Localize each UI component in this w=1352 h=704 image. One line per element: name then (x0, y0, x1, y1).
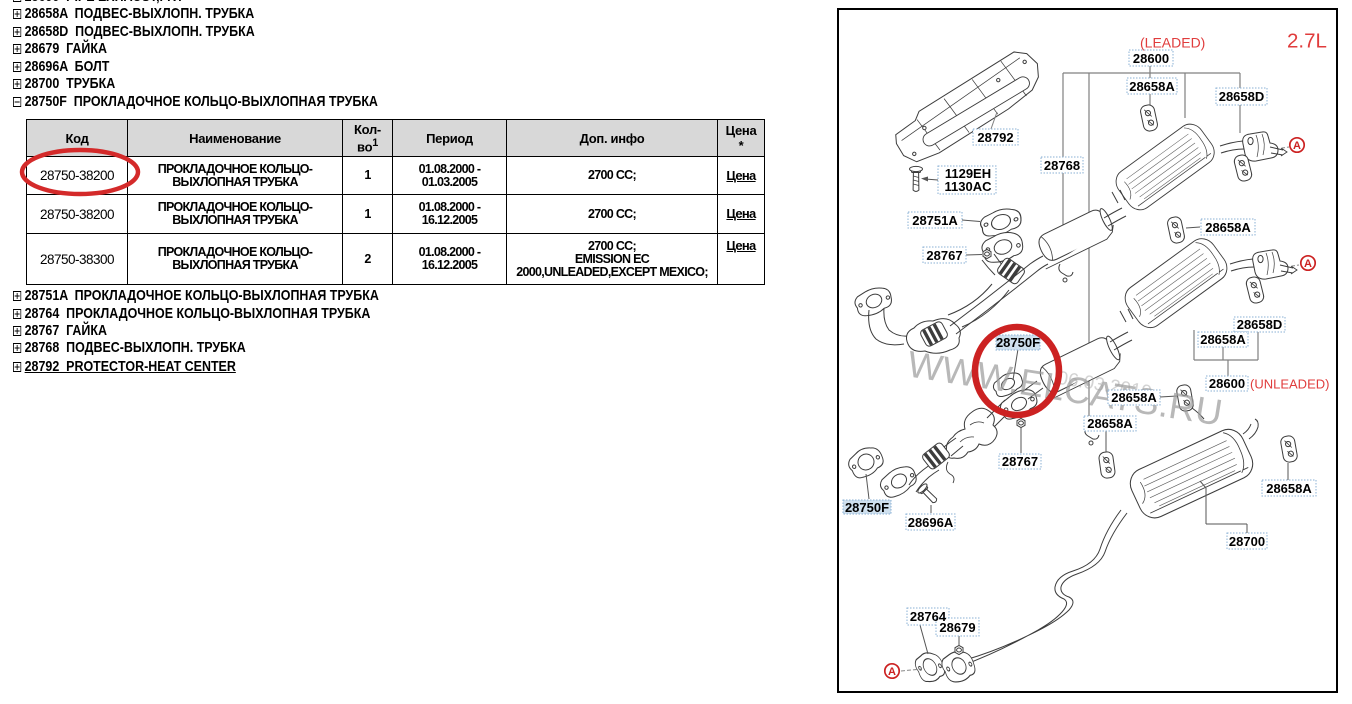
svg-text:28768: 28768 (1044, 158, 1080, 173)
svg-text:28792: 28792 (977, 130, 1013, 145)
svg-text:28658D: 28658D (1219, 89, 1265, 104)
svg-text:28750F: 28750F (845, 500, 889, 515)
svg-text:(UNLEADED): (UNLEADED) (1250, 377, 1329, 392)
svg-text:28658A: 28658A (1200, 332, 1246, 347)
svg-text:1130AC: 1130AC (945, 179, 993, 194)
svg-text:28658A: 28658A (1087, 416, 1133, 431)
svg-text:28658A: 28658A (1111, 390, 1157, 405)
svg-text:28679: 28679 (939, 620, 975, 635)
svg-text:28767: 28767 (1002, 454, 1038, 469)
svg-text:28658A: 28658A (1266, 481, 1312, 496)
svg-text:28700: 28700 (1229, 534, 1265, 549)
svg-text:28658A: 28658A (1129, 79, 1175, 94)
svg-text:28600: 28600 (1133, 51, 1169, 66)
svg-text:28600: 28600 (1209, 376, 1245, 391)
svg-text:2.7L: 2.7L (1287, 30, 1327, 53)
svg-text:28750F: 28750F (996, 335, 1040, 350)
svg-text:28696A: 28696A (908, 515, 954, 530)
svg-text:(LEADED): (LEADED) (1140, 35, 1205, 51)
svg-text:28767: 28767 (926, 248, 962, 263)
svg-text:28658D: 28658D (1237, 317, 1283, 332)
svg-text:28658A: 28658A (1205, 220, 1251, 235)
svg-text:28751A: 28751A (912, 213, 958, 228)
